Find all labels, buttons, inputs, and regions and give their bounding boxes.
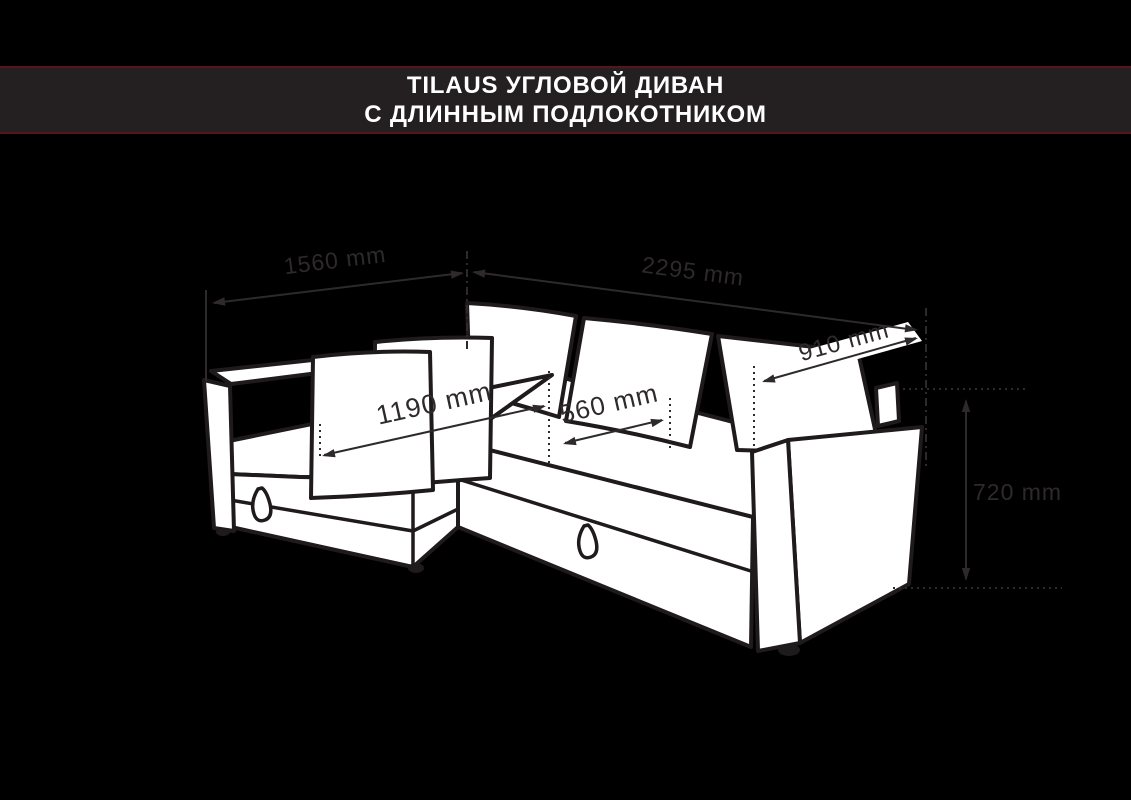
sofa-foot-chaise [408, 563, 424, 573]
furniture-dimension-page: TILAUS УГЛОВОЙ ДИВАН С ДЛИННЫМ ПОДЛОКОТН… [0, 0, 1131, 800]
sofa-foot-right [778, 644, 800, 656]
arrowhead [905, 324, 918, 332]
arrowhead [472, 270, 485, 278]
dimension-line [214, 273, 462, 303]
right-armrest-outer [788, 427, 922, 643]
arrowhead [451, 270, 464, 278]
sofa-dimension-diagram: 1560 mm 2295 mm 910 mm [0, 0, 1131, 800]
dimension-label: 720 mm [973, 479, 1062, 505]
dimension-label: 1560 mm [282, 241, 387, 279]
arrowhead [962, 399, 970, 412]
left-armrest [204, 380, 234, 531]
dimension-label: 2295 mm [640, 251, 745, 290]
back-frame-post [876, 383, 899, 426]
arrowhead [212, 297, 225, 305]
pillow-front [311, 352, 433, 498]
arrowhead [962, 568, 970, 581]
sofa-foot-left [216, 528, 230, 536]
